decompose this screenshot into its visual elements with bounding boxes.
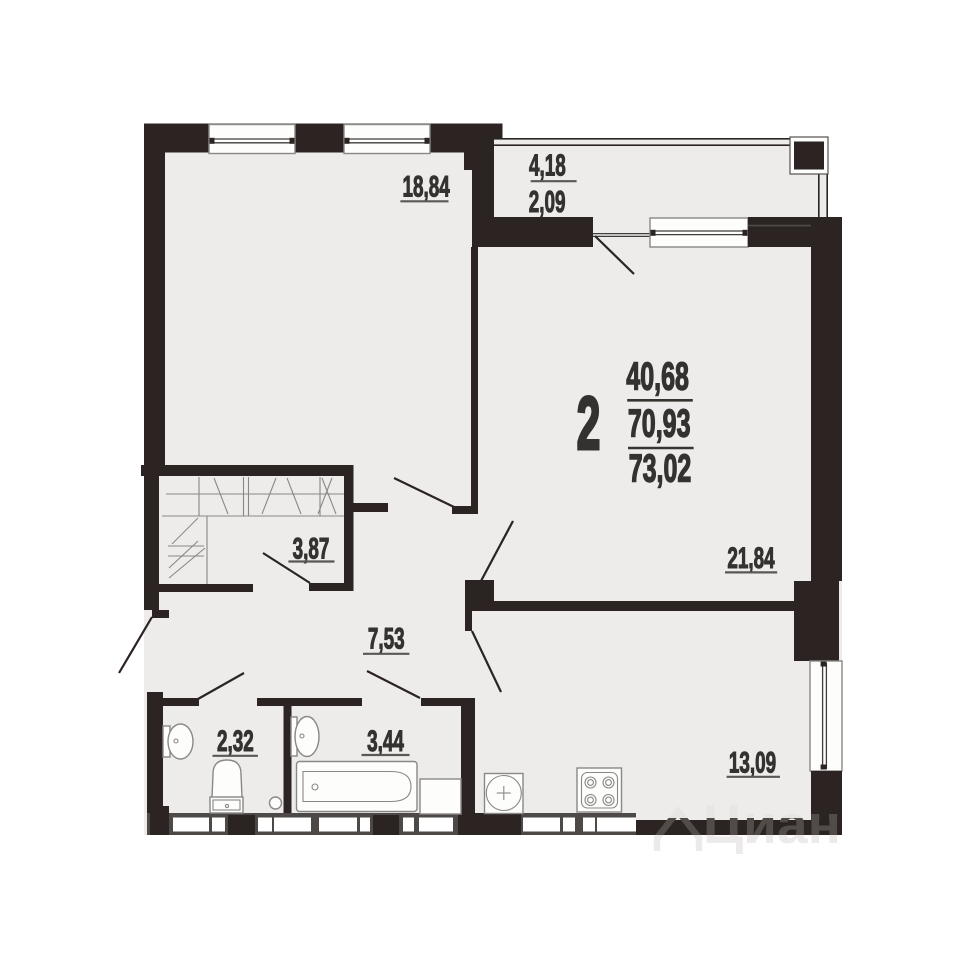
svg-text:3,44: 3,44: [367, 726, 404, 758]
svg-text:4,18: 4,18: [529, 149, 566, 183]
svg-text:73,02: 73,02: [629, 447, 692, 490]
svg-text:40,68: 40,68: [626, 355, 689, 398]
svg-text:21,84: 21,84: [727, 543, 774, 575]
svg-text:18,84: 18,84: [402, 171, 449, 203]
svg-text:70,93: 70,93: [628, 402, 691, 445]
svg-text:2,32: 2,32: [217, 726, 254, 758]
svg-text:2: 2: [577, 381, 601, 465]
svg-text:7,53: 7,53: [368, 623, 405, 655]
svg-text:13,09: 13,09: [729, 747, 776, 779]
svg-text:2,09: 2,09: [529, 185, 566, 219]
